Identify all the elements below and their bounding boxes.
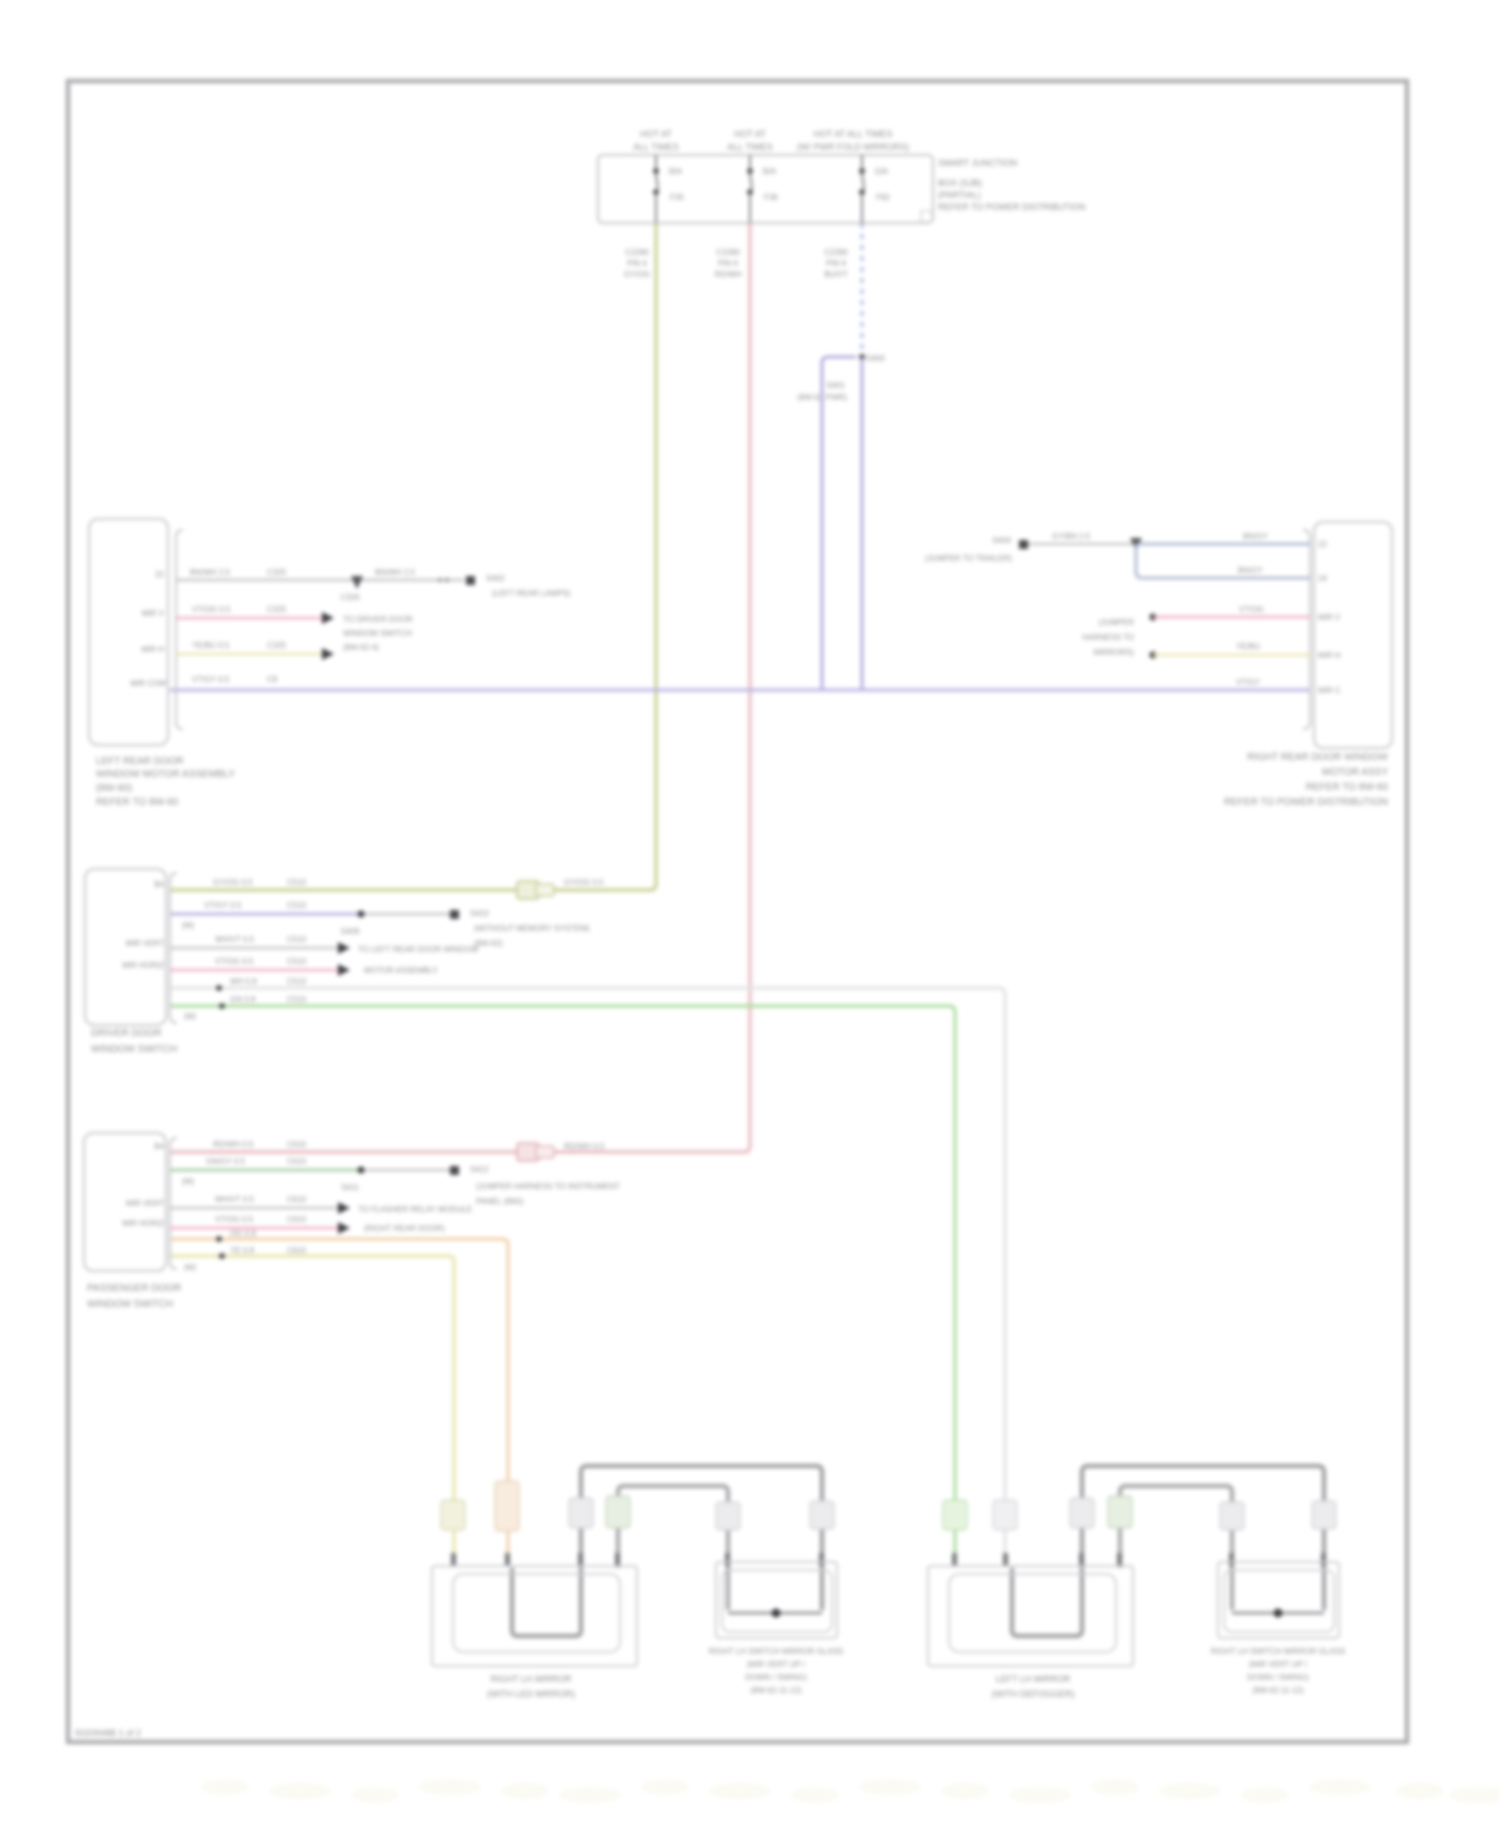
svg-text:HOT AT ALL TIMES: HOT AT ALL TIMES xyxy=(813,129,892,139)
svg-text:F35: F35 xyxy=(670,193,684,202)
svg-text:VT/OG 0.5: VT/OG 0.5 xyxy=(215,957,254,966)
svg-text:(M): (M) xyxy=(182,1177,194,1186)
svg-text:GN/GY 0.5: GN/GY 0.5 xyxy=(206,1157,246,1166)
svg-text:30A: 30A xyxy=(668,167,683,176)
svg-text:SMART JUNCTION: SMART JUNCTION xyxy=(938,158,1017,168)
svg-text:MIR H: MIR H xyxy=(141,645,164,654)
svg-text:DOWN / SWING): DOWN / SWING) xyxy=(1247,1673,1309,1682)
svg-text:C2280: C2280 xyxy=(824,248,848,257)
svg-text:VT/OG 0.5: VT/OG 0.5 xyxy=(215,1215,254,1224)
svg-text:C510: C510 xyxy=(287,878,307,887)
svg-text:HOT AT: HOT AT xyxy=(734,129,766,139)
svg-text:BOX (SJB): BOX (SJB) xyxy=(938,178,982,188)
svg-text:BN/WH 2.5: BN/WH 2.5 xyxy=(375,568,416,577)
svg-text:TO LEFT REAR DOOR WINDOW: TO LEFT REAR DOOR WINDOW xyxy=(358,945,479,954)
svg-text:WINDOW SWITCH: WINDOW SWITCH xyxy=(87,1299,173,1310)
svg-text:PIN 9: PIN 9 xyxy=(826,259,847,268)
svg-text:C510: C510 xyxy=(287,957,307,966)
svg-text:B4: B4 xyxy=(154,1142,164,1151)
svg-text:C510: C510 xyxy=(287,935,307,944)
svg-text:30A: 30A xyxy=(762,167,777,176)
svg-text:REFER TO 8W-60: REFER TO 8W-60 xyxy=(96,797,179,808)
svg-text:(JUMPER TO TRAILER): (JUMPER TO TRAILER) xyxy=(925,554,1012,563)
svg-text:(M): (M) xyxy=(182,921,194,930)
svg-text:HARNESS TO: HARNESS TO xyxy=(1082,633,1134,642)
svg-text:RIGHT LH SWITCH MIRROR GLASS: RIGHT LH SWITCH MIRROR GLASS xyxy=(709,1647,844,1656)
svg-text:(MIR VERT UP /: (MIR VERT UP / xyxy=(1249,1660,1308,1669)
svg-text:YE/BU 0.5: YE/BU 0.5 xyxy=(192,641,230,650)
svg-text:DOWN / SWING): DOWN / SWING) xyxy=(745,1673,807,1682)
svg-text:YE/BU: YE/BU xyxy=(1236,642,1260,651)
svg-text:GY/OG 0.5: GY/OG 0.5 xyxy=(564,878,604,887)
svg-text:10A: 10A xyxy=(874,167,889,176)
svg-text:MIR VERT: MIR VERT xyxy=(126,1199,164,1208)
svg-text:LEFT LH MIRROR: LEFT LH MIRROR xyxy=(996,1674,1071,1684)
svg-text:F36: F36 xyxy=(764,193,778,202)
svg-text:S412: S412 xyxy=(470,1165,489,1174)
svg-text:GY/OG 0.5: GY/OG 0.5 xyxy=(213,878,253,887)
svg-text:C2280: C2280 xyxy=(625,248,649,257)
svg-text:VT/OG: VT/OG xyxy=(1239,605,1264,614)
svg-text:REFER TO POWER DISTRIBUTION: REFER TO POWER DISTRIBUTION xyxy=(1224,797,1388,808)
svg-text:C9: C9 xyxy=(267,675,278,684)
svg-text:OG 0.8: OG 0.8 xyxy=(230,1229,256,1238)
svg-text:C610: C610 xyxy=(287,1246,307,1255)
svg-text:HOT AT: HOT AT xyxy=(640,129,672,139)
svg-text:WINDOW MOTOR ASSEMBLY: WINDOW MOTOR ASSEMBLY xyxy=(96,769,235,780)
svg-text:C510: C510 xyxy=(287,901,307,910)
svg-text:RIGHT REAR DOOR WINDOW: RIGHT REAR DOOR WINDOW xyxy=(1247,752,1388,763)
svg-text:S410: S410 xyxy=(470,909,489,918)
svg-text:C510: C510 xyxy=(287,995,307,1004)
svg-text:C610: C610 xyxy=(287,1195,307,1204)
svg-text:PANEL (8W)): PANEL (8W)) xyxy=(476,1197,524,1206)
svg-text:ALL TIMES: ALL TIMES xyxy=(727,142,773,152)
svg-text:F82: F82 xyxy=(876,193,890,202)
svg-text:C2280: C2280 xyxy=(716,248,740,257)
svg-text:WH/VT 0.5: WH/VT 0.5 xyxy=(215,935,255,944)
svg-text:MIR H: MIR H xyxy=(1318,651,1341,660)
svg-text:(RIGHT REAR DOOR): (RIGHT REAR DOOR) xyxy=(364,1224,445,1233)
svg-text:(WITH DEFOGGER): (WITH DEFOGGER) xyxy=(992,1689,1075,1699)
svg-text:DRIVER DOOR: DRIVER DOOR xyxy=(91,1028,162,1039)
svg-text:(PARTIAL): (PARTIAL) xyxy=(938,190,981,200)
svg-text:S404: S404 xyxy=(992,536,1011,545)
svg-text:BN/GY: BN/GY xyxy=(1238,566,1264,575)
svg-text:(WITH LED MIRROR): (WITH LED MIRROR) xyxy=(487,1689,575,1699)
svg-text:S402: S402 xyxy=(486,574,505,583)
svg-text:WH/VT 0.5: WH/VT 0.5 xyxy=(215,1195,255,1204)
svg-text:22: 22 xyxy=(155,570,164,579)
svg-text:(8W-62-11-12): (8W-62-11-12) xyxy=(1252,1686,1304,1695)
svg-text:GN 0.8: GN 0.8 xyxy=(230,995,256,1004)
svg-text:C610: C610 xyxy=(287,1215,307,1224)
svg-text:RIGHT LH MIRROR: RIGHT LH MIRROR xyxy=(491,1674,572,1684)
svg-text:WINDOW SWITCH: WINDOW SWITCH xyxy=(343,629,412,638)
svg-text:RD/WH 0.5: RD/WH 0.5 xyxy=(213,1140,254,1149)
svg-text:GY/BN 2.5: GY/BN 2.5 xyxy=(1052,532,1091,541)
svg-text:(M): (M) xyxy=(184,1263,196,1272)
svg-text:RD/WH: RD/WH xyxy=(714,270,741,279)
svg-text:5020948B 1 of 2: 5020948B 1 of 2 xyxy=(75,1728,141,1738)
svg-text:RD/WH 0.5: RD/WH 0.5 xyxy=(564,1142,605,1151)
svg-text:REFER TO POWER DISTRIBUTION: REFER TO POWER DISTRIBUTION xyxy=(938,202,1086,212)
svg-text:REFER TO 8W-60: REFER TO 8W-60 xyxy=(1306,782,1389,793)
svg-text:(JUMPER HARNESS TO INSTRUMENT: (JUMPER HARNESS TO INSTRUMENT xyxy=(476,1182,620,1191)
svg-text:MIRRORS): MIRRORS) xyxy=(1094,648,1135,657)
svg-text:BN/GY: BN/GY xyxy=(1243,532,1269,541)
svg-text:C325: C325 xyxy=(267,568,287,577)
svg-text:MIR HORIZ: MIR HORIZ xyxy=(122,1219,164,1228)
svg-text:22: 22 xyxy=(1318,540,1327,549)
svg-text:TO FLASHER RELAY MODULE: TO FLASHER RELAY MODULE xyxy=(358,1205,472,1214)
svg-text:B4: B4 xyxy=(154,880,164,889)
svg-text:MIR HORIZ: MIR HORIZ xyxy=(122,961,164,970)
svg-text:S411: S411 xyxy=(341,1183,360,1192)
svg-text:PIN 6: PIN 6 xyxy=(718,259,739,268)
svg-text:MIR COM: MIR COM xyxy=(130,679,166,688)
svg-text:S401: S401 xyxy=(826,381,845,390)
svg-text:C326: C326 xyxy=(340,593,360,602)
svg-text:(M): (M) xyxy=(184,1012,196,1021)
svg-text:24: 24 xyxy=(1318,574,1327,583)
svg-text:PIN 4: PIN 4 xyxy=(627,259,648,268)
svg-text:WH 0.8: WH 0.8 xyxy=(230,977,257,986)
svg-text:BU/VT: BU/VT xyxy=(824,270,848,279)
svg-text:YE 0.8: YE 0.8 xyxy=(230,1246,255,1255)
svg-text:C610: C610 xyxy=(287,1157,307,1166)
svg-text:(W/ PWR FOLD MIRRORS): (W/ PWR FOLD MIRRORS) xyxy=(797,142,909,152)
svg-text:C510: C510 xyxy=(287,977,307,986)
svg-text:RIGHT LH SWITCH MIRROR GLASS: RIGHT LH SWITCH MIRROR GLASS xyxy=(1211,1647,1346,1656)
svg-text:VT/GY: VT/GY xyxy=(1236,678,1261,687)
svg-text:MIR V: MIR V xyxy=(142,609,165,618)
svg-text:(JUMPER: (JUMPER xyxy=(1098,618,1134,627)
svg-text:WINDOW SWITCH: WINDOW SWITCH xyxy=(91,1044,177,1055)
svg-text:C610: C610 xyxy=(287,1140,307,1149)
svg-text:BN/WH 2.5: BN/WH 2.5 xyxy=(190,568,231,577)
svg-text:MOTOR ASSEMBLY: MOTOR ASSEMBLY xyxy=(364,966,439,975)
svg-text:(MIR VERT UP /: (MIR VERT UP / xyxy=(747,1660,806,1669)
svg-text:(8W-62-11-12): (8W-62-11-12) xyxy=(750,1686,802,1695)
svg-text:C325: C325 xyxy=(267,641,287,650)
svg-text:(8W-62-4): (8W-62-4) xyxy=(343,643,379,652)
svg-text:MIR V: MIR V xyxy=(1318,613,1341,622)
svg-text:VT/OG 0.5: VT/OG 0.5 xyxy=(192,605,231,614)
svg-text:S409: S409 xyxy=(341,927,360,936)
svg-text:PASSENGER DOOR: PASSENGER DOOR xyxy=(87,1283,181,1294)
svg-text:(WITHOUT MEMORY SYSTEM): (WITHOUT MEMORY SYSTEM) xyxy=(474,924,590,933)
svg-text:ALL TIMES: ALL TIMES xyxy=(633,142,679,152)
svg-text:LEFT REAR DOOR: LEFT REAR DOOR xyxy=(96,756,184,767)
svg-text:(LEFT REAR LAMPS): (LEFT REAR LAMPS) xyxy=(492,589,571,598)
svg-text:S400: S400 xyxy=(866,354,885,363)
svg-text:VT/GY 0.5: VT/GY 0.5 xyxy=(204,901,242,910)
svg-text:(8W-60): (8W-60) xyxy=(96,783,132,794)
svg-text:C325: C325 xyxy=(267,605,287,614)
svg-text:TO DRIVER DOOR: TO DRIVER DOOR xyxy=(343,615,413,624)
svg-text:GY/OG: GY/OG xyxy=(624,270,650,279)
svg-text:MIR VERT: MIR VERT xyxy=(126,939,164,948)
svg-text:MIR C: MIR C xyxy=(1318,686,1341,695)
svg-text:MOTOR ASSY: MOTOR ASSY xyxy=(1322,767,1388,778)
svg-text:VT/GY 0.5: VT/GY 0.5 xyxy=(192,675,230,684)
